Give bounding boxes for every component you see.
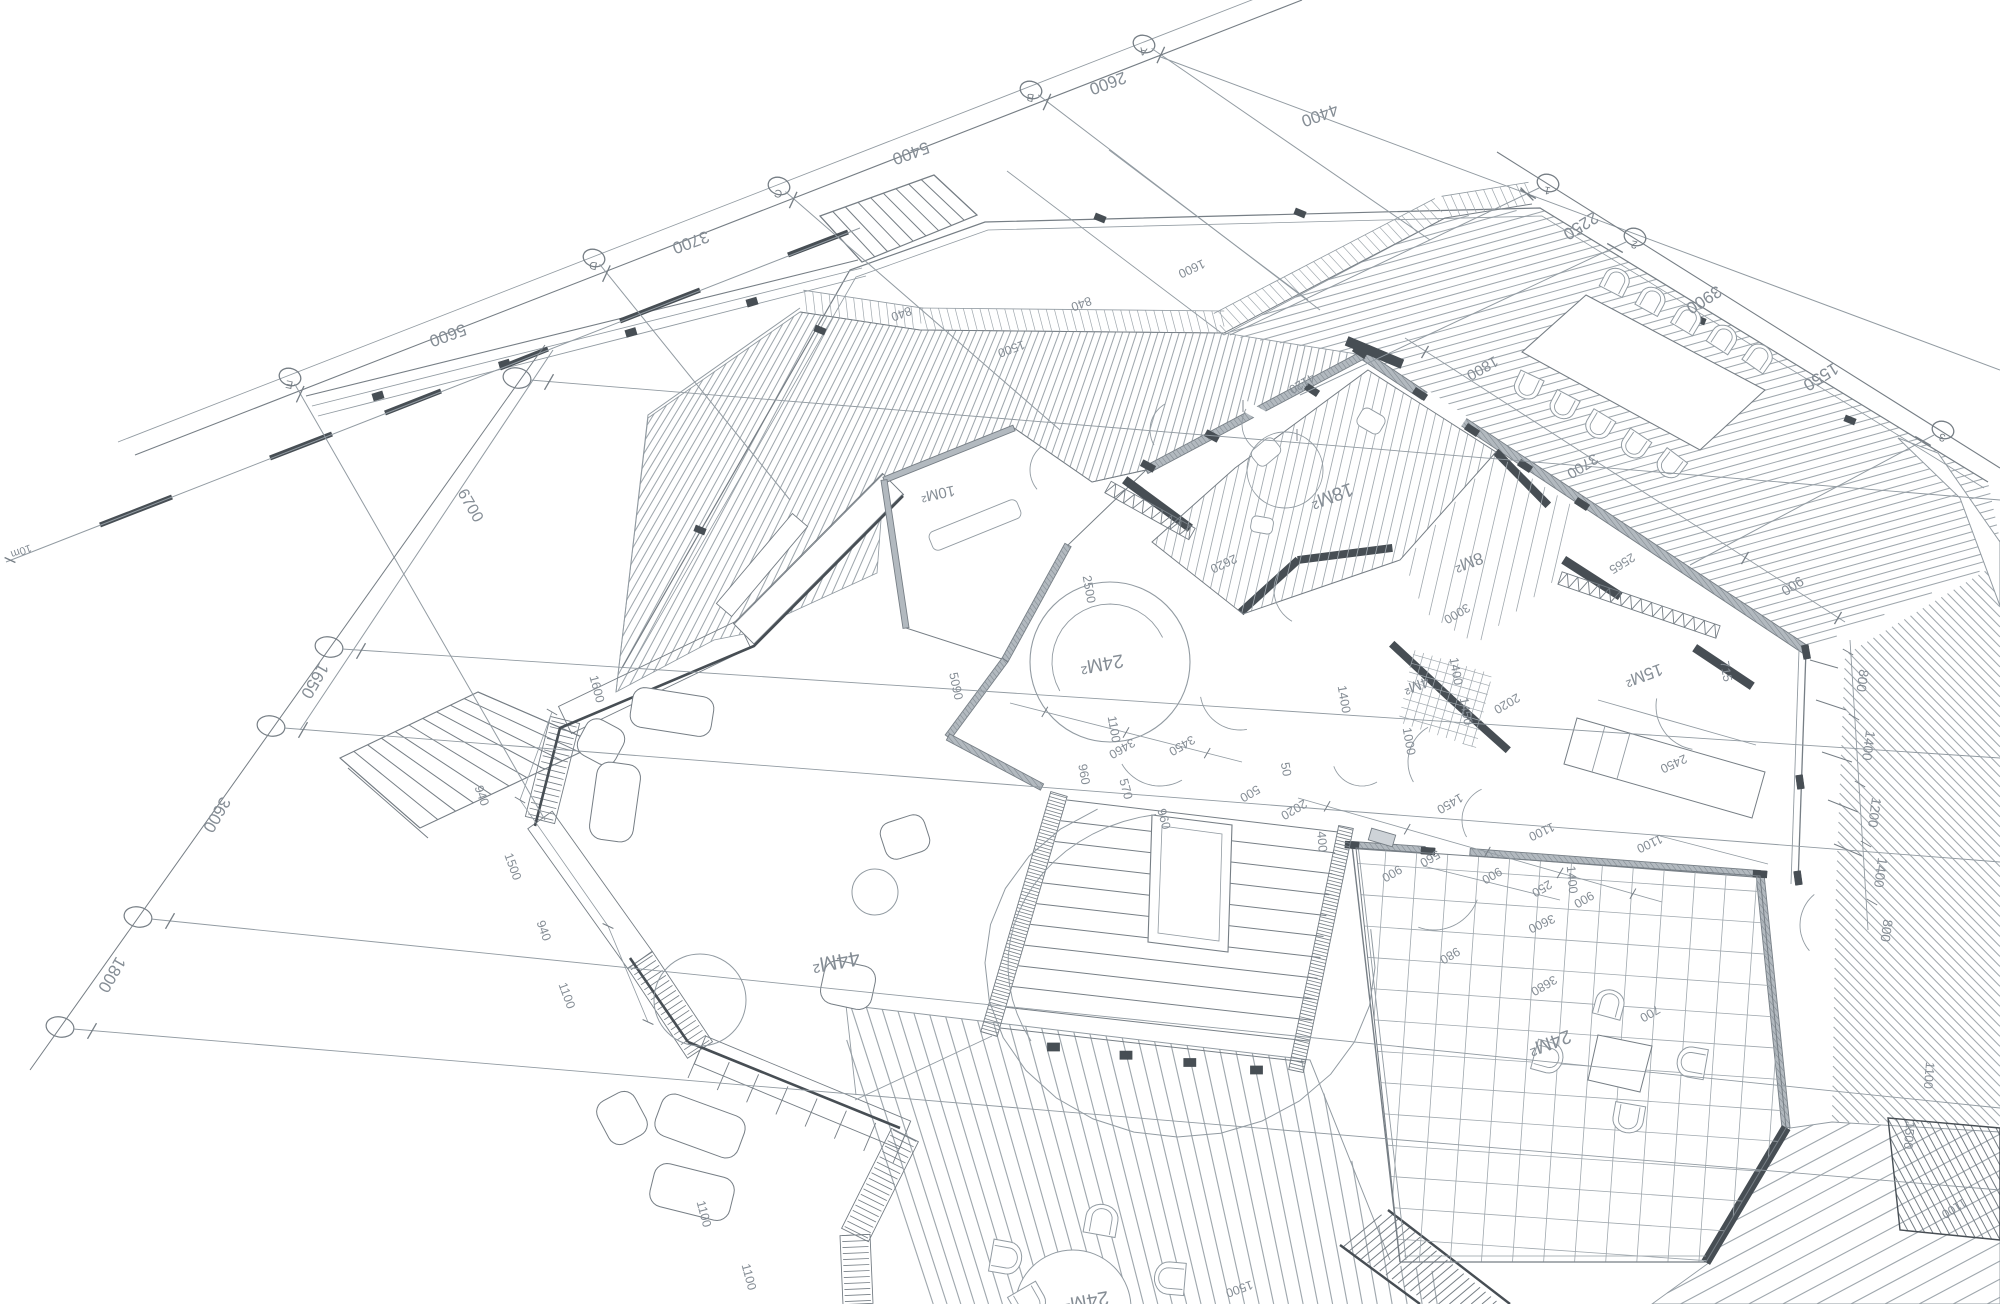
- svg-text:800: 800: [1877, 918, 1895, 942]
- svg-text:400: 400: [1314, 831, 1330, 853]
- svg-text:1400: 1400: [1564, 865, 1580, 894]
- svg-text:50: 50: [1278, 761, 1294, 777]
- svg-text:1100: 1100: [1921, 1061, 1937, 1089]
- svg-text:800: 800: [1853, 668, 1871, 692]
- svg-text:1500: 1500: [1901, 1121, 1917, 1150]
